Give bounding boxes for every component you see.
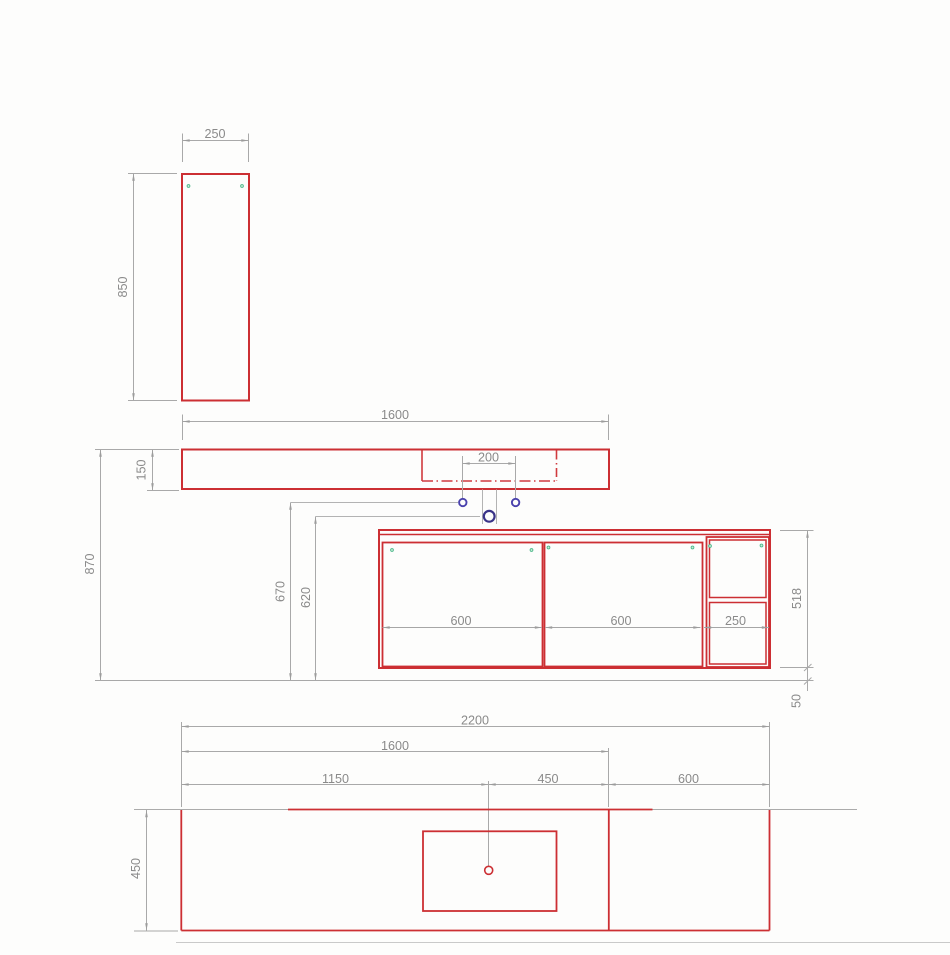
svg-text:870: 870	[83, 553, 97, 574]
svg-text:620: 620	[299, 587, 313, 608]
svg-text:600: 600	[450, 614, 471, 628]
svg-text:518: 518	[790, 588, 804, 609]
svg-text:50: 50	[790, 694, 804, 708]
svg-text:1150: 1150	[322, 772, 349, 786]
svg-text:1600: 1600	[381, 739, 409, 753]
svg-text:600: 600	[678, 772, 699, 786]
svg-text:200: 200	[478, 451, 499, 465]
svg-text:1600: 1600	[381, 408, 409, 422]
svg-text:450: 450	[537, 772, 558, 786]
svg-text:150: 150	[135, 459, 149, 480]
svg-text:250: 250	[204, 127, 225, 141]
svg-text:250: 250	[725, 614, 746, 628]
svg-text:670: 670	[274, 581, 288, 602]
svg-text:450: 450	[129, 858, 143, 879]
svg-text:850: 850	[116, 276, 130, 297]
svg-text:2200: 2200	[461, 713, 489, 727]
svg-text:600: 600	[610, 614, 631, 628]
